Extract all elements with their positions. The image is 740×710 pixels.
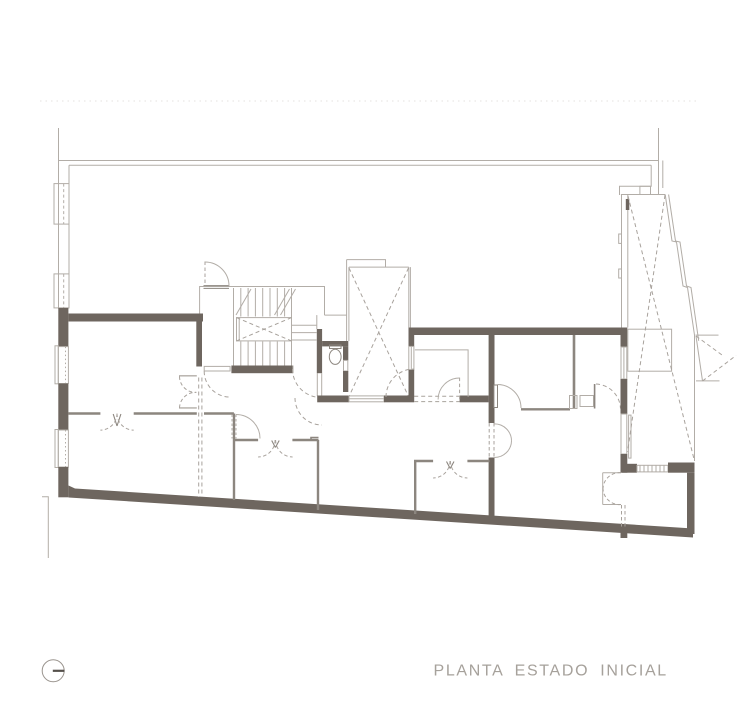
svg-text:PLANTA ESTADO INICIAL: PLANTA ESTADO INICIAL (434, 663, 668, 680)
